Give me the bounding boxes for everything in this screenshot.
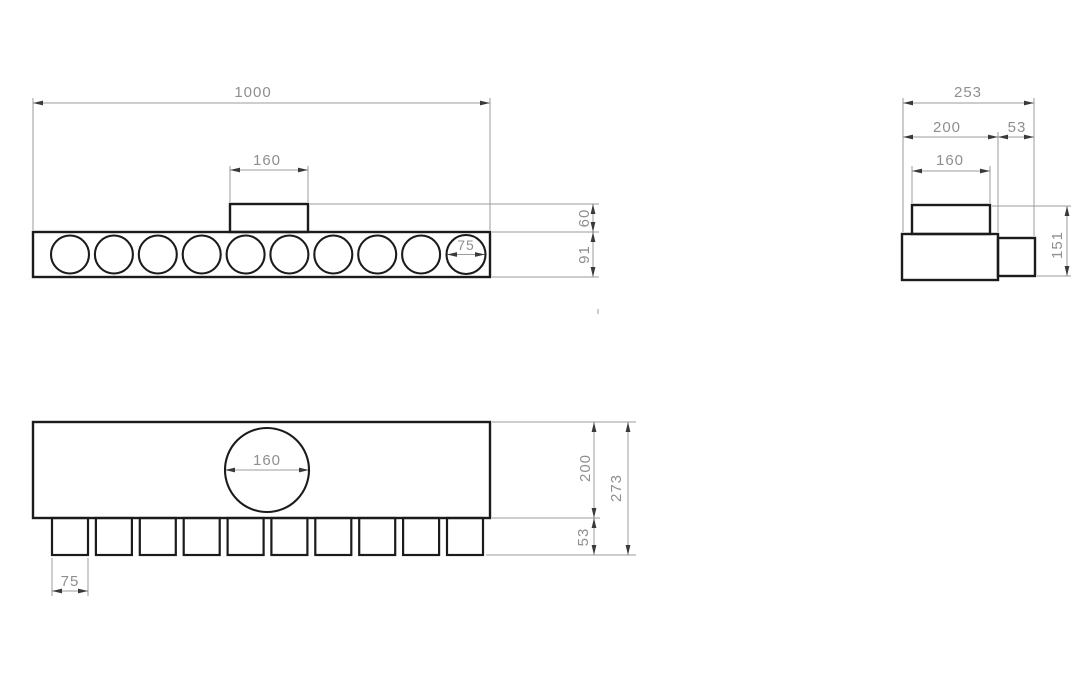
drawing-sheet: 1000160756091253200531601511607520053273	[0, 0, 1090, 696]
dim-arrowhead-right	[78, 589, 88, 594]
plan-stub-9	[403, 518, 439, 555]
plan-stub-7	[315, 518, 351, 555]
plan-stub-10	[447, 518, 483, 555]
dim-arrowhead-right	[980, 169, 990, 174]
dim-arrowhead-left	[230, 168, 240, 173]
dim-arrowhead-up	[591, 232, 596, 242]
dim-label-160: 160	[253, 452, 281, 469]
dim-arrowhead-left	[447, 252, 457, 257]
dim-arrowhead-down	[626, 545, 631, 555]
front-port-2	[95, 236, 133, 274]
dim-label-60: 60	[576, 209, 593, 228]
front-port-4	[183, 236, 221, 274]
front-inlet-tab-outline	[230, 204, 308, 232]
plan-stub-3	[140, 518, 176, 555]
front-port-9	[402, 236, 440, 274]
dim-arrowhead-right	[480, 101, 490, 106]
dim-arrowhead-down	[592, 508, 597, 518]
dim-arrowhead-left	[912, 169, 922, 174]
dim-label-75: 75	[61, 573, 80, 590]
dim-label-53: 53	[1008, 119, 1027, 136]
side-nozzle-outline	[998, 238, 1035, 276]
front-port-1	[51, 236, 89, 274]
front-view: 1000160756091	[33, 84, 599, 277]
dim-label-1000: 1000	[234, 84, 271, 101]
dim-arrowhead-up	[592, 422, 597, 432]
dim-arrowhead-up	[1065, 206, 1070, 216]
plan-stub-1	[52, 518, 88, 555]
front-port-8	[358, 236, 396, 274]
dim-label-160: 160	[253, 152, 281, 169]
front-port-3	[139, 236, 177, 274]
front-port-5	[227, 236, 265, 274]
plan-stub-5	[228, 518, 264, 555]
side-view: 25320053160151	[902, 84, 1071, 280]
front-port-6	[270, 236, 308, 274]
dim-arrowhead-left	[998, 135, 1008, 140]
dim-label-273: 273	[608, 474, 625, 502]
plan-stub-4	[184, 518, 220, 555]
dim-label-151: 151	[1049, 231, 1066, 259]
side-body-outline	[902, 234, 998, 280]
dim-arrowhead-down	[591, 267, 596, 277]
dim-label-91: 91	[576, 245, 593, 264]
dim-arrowhead-left	[225, 468, 235, 473]
dim-arrowhead-down	[1065, 266, 1070, 276]
dim-label-160: 160	[936, 152, 964, 169]
dim-arrowhead-up	[626, 422, 631, 432]
dim-arrowhead-left	[903, 135, 913, 140]
plan-stub-6	[271, 518, 307, 555]
dim-label-53: 53	[575, 528, 592, 547]
plan-view: 1607520053273	[33, 422, 636, 596]
side-inlet-tab-outline	[912, 205, 990, 234]
dim-arrowhead-left	[33, 101, 43, 106]
dim-label-200: 200	[933, 119, 961, 136]
front-port-7	[314, 236, 352, 274]
dim-arrowhead-right	[298, 168, 308, 173]
dim-arrowhead-right	[475, 252, 485, 257]
dim-arrowhead-up	[592, 518, 597, 528]
dim-label-253: 253	[954, 84, 982, 101]
dim-arrowhead-right	[988, 135, 998, 140]
dim-label-75: 75	[457, 237, 475, 253]
dim-arrowhead-right	[299, 468, 309, 473]
drawing-svg: 1000160756091253200531601511607520053273	[0, 0, 1090, 696]
dim-label-200: 200	[577, 454, 594, 482]
dim-arrowhead-left	[903, 101, 913, 106]
dim-arrowhead-down	[592, 545, 597, 555]
plan-stub-8	[359, 518, 395, 555]
plan-stub-2	[96, 518, 132, 555]
dim-arrowhead-right	[1024, 101, 1034, 106]
